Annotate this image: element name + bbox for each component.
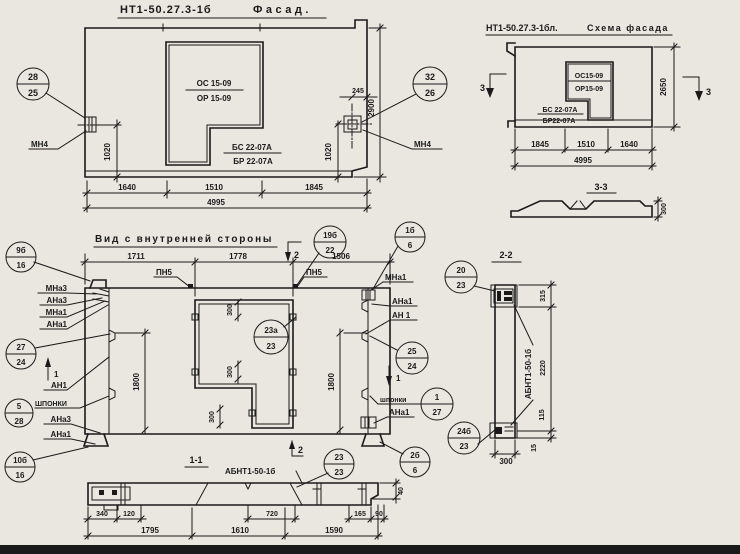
- dim-40: 40: [398, 487, 405, 495]
- inner-window-opening: [195, 300, 293, 428]
- svg-text:16: 16: [16, 471, 25, 480]
- label-shponki-right: шпонки: [380, 397, 406, 404]
- label-an1: АН1: [51, 381, 68, 390]
- label-ana1: АНа1: [47, 320, 68, 329]
- label-ana3-bottom: АНа3: [51, 415, 72, 424]
- callout-27-24: 27 24: [6, 334, 110, 369]
- svg-text:24б: 24б: [457, 427, 471, 436]
- svg-text:5: 5: [17, 402, 22, 411]
- dim-1640-s: 1640: [620, 140, 638, 149]
- label-mna1-right: МНа1: [385, 273, 407, 282]
- svg-text:20: 20: [457, 266, 466, 275]
- label-ana1-right-bottom: АНа1: [389, 408, 410, 417]
- svg-text:32: 32: [425, 72, 435, 82]
- section-1-1-title: 1-1: [189, 455, 202, 465]
- scheme-window-mark-bottom: ОР15-09: [575, 86, 603, 93]
- scheme-drawing: НТ1-50.27.3-1бл. Схема фасада ОС15-09 ОР…: [480, 23, 711, 221]
- shponka-keys-right: [362, 300, 368, 400]
- facade-window-mark-bottom: ОР 15-09: [197, 94, 232, 103]
- callout-20-23: 20 23: [445, 261, 495, 293]
- label-mna1: МНа1: [46, 308, 68, 317]
- svg-text:23: 23: [457, 281, 466, 290]
- dim-2650: 2650: [659, 78, 668, 96]
- callout-5-28: 5 28: [5, 399, 33, 427]
- dim-1800-right: 1800: [327, 373, 336, 391]
- scheme-base-mark-top: БС 22-07А: [543, 107, 578, 114]
- inner-view-title: Вид с внутренней стороны: [95, 234, 273, 245]
- dim-4995: 4995: [207, 198, 225, 207]
- section-mark-1-right: 1: [396, 374, 401, 383]
- section-3-3: 3-3 300: [511, 182, 668, 221]
- label-an1-right: АН 1: [392, 311, 411, 320]
- dim-300-b: 300: [227, 366, 234, 378]
- section-mark-3-left: 3: [480, 74, 506, 98]
- section-2-2-label: АБНТ1-50-1б: [524, 349, 533, 399]
- svg-text:23: 23: [335, 453, 344, 462]
- inner-view-drawing: Вид с внутренней стороны 1711 1778 1506 …: [5, 222, 496, 487]
- callout-10b-16: 10б 16: [5, 447, 88, 482]
- drawing-sheet: НТ1-50.27.3-1б Фасад. ОС 15-09 ОР 15-09 …: [0, 0, 740, 554]
- section-3-3-title: 3-3: [594, 182, 607, 192]
- svg-text:23: 23: [335, 468, 344, 477]
- embed-label-mn4-left: МН4: [31, 140, 48, 149]
- svg-text:3: 3: [480, 83, 485, 93]
- facade-dimensions: 1020 245 1020 2900 1640 1510 1845 4995: [83, 24, 386, 212]
- facade-base-mark-bottom: БР 22-07А: [233, 157, 273, 166]
- facade-title-code: НТ1-50.27.3-1б: [120, 4, 212, 16]
- embed-label-mn4-right: МН4: [414, 140, 431, 149]
- dim-1640: 1640: [118, 183, 136, 192]
- svg-text:23: 23: [267, 342, 276, 351]
- section-mark-2-bottom: 2: [289, 440, 303, 456]
- svg-text:24: 24: [17, 358, 26, 367]
- section-mark-1-left: 1: [54, 370, 59, 379]
- section-2-2-drawing: 2-2 АБНТ1-50-1б 315 2220 115 15 300: [490, 250, 556, 466]
- inner-top-dimensions: 1711 1778 1506: [81, 252, 394, 296]
- label-ana1-right: АНа1: [392, 297, 413, 306]
- svg-text:1б: 1б: [405, 226, 414, 235]
- svg-text:2: 2: [298, 445, 303, 455]
- callout-25-24: 25 24: [370, 336, 428, 374]
- label-ana3: АНа3: [47, 296, 68, 305]
- dim-1778: 1778: [229, 252, 247, 261]
- dim-2900: 2900: [367, 99, 376, 117]
- scheme-title-word: Схема фасада: [587, 23, 669, 33]
- dim-245: 245: [352, 88, 364, 95]
- svg-text:19б: 19б: [323, 231, 337, 240]
- section-1-1-drawing: 1-1 АБНТ1-50-1б 40 340 120 720 165 90 17…: [84, 455, 405, 539]
- svg-text:1: 1: [435, 393, 440, 402]
- inner-window-dimensions: 300 300 300 1800 1800: [116, 299, 366, 434]
- dim-1845: 1845: [305, 183, 323, 192]
- svg-text:2: 2: [294, 250, 299, 260]
- dim-1711: 1711: [127, 252, 145, 261]
- callout-9b-16: 9б 16: [6, 242, 90, 281]
- dim-165: 165: [354, 511, 366, 518]
- label-pn5-left: ПН5: [156, 268, 173, 277]
- scan-edge-band: [0, 545, 740, 554]
- callout-23a-23: 23а 23: [254, 317, 296, 354]
- dim-90: 90: [375, 511, 383, 518]
- callout-28-25: 28 25: [17, 68, 85, 118]
- callout-23-23: 23 23: [297, 449, 354, 487]
- svg-text:16: 16: [17, 261, 26, 270]
- section-2-2-title: 2-2: [499, 250, 512, 260]
- svg-text:27: 27: [433, 408, 442, 417]
- dim-4995-s: 4995: [574, 156, 592, 165]
- dim-300-a: 300: [227, 304, 234, 316]
- dim-315: 315: [540, 290, 547, 302]
- facade-base-mark-top: БС 22-07А: [232, 143, 272, 152]
- dim-1020-left: 1020: [103, 143, 112, 161]
- embed-detail-1-1: [92, 487, 130, 500]
- dim-2220: 2220: [540, 360, 547, 376]
- dim-720: 720: [266, 511, 278, 518]
- callout-24b-23: 24б 23: [448, 422, 496, 454]
- dim-340: 340: [96, 511, 108, 518]
- section-1-1-dimensions: 40 340 120 720 165 90 1795 1610 1590: [84, 479, 405, 539]
- label-mna3: МНа3: [46, 284, 68, 293]
- dim-115: 115: [539, 409, 546, 420]
- dim-300-section3: 300: [661, 203, 668, 215]
- dim-1020-right: 1020: [324, 143, 333, 161]
- dim-1510: 1510: [205, 183, 223, 192]
- svg-text:22: 22: [326, 246, 335, 255]
- dim-1845-s: 1845: [531, 140, 549, 149]
- label-ana1-bottom: АНа1: [51, 430, 72, 439]
- panel-drawing-svg: НТ1-50.27.3-1б Фасад. ОС 15-09 ОР 15-09 …: [0, 0, 740, 554]
- scheme-title-code: НТ1-50.27.3-1бл.: [486, 23, 558, 33]
- callout-1-27: 1 27: [421, 388, 453, 420]
- svg-text:6: 6: [413, 466, 418, 475]
- dim-120: 120: [123, 511, 135, 518]
- dim-300-bottom: 300: [499, 457, 513, 466]
- svg-text:23а: 23а: [264, 326, 278, 335]
- shponka-keys-left: [109, 330, 115, 400]
- svg-text:6: 6: [408, 241, 413, 250]
- svg-text:24: 24: [408, 362, 417, 371]
- svg-text:28: 28: [28, 72, 38, 82]
- scheme-window-mark-top: ОС15-09: [575, 73, 604, 80]
- dim-1590: 1590: [325, 526, 343, 535]
- label-pn5-right: ПН5: [306, 268, 323, 277]
- svg-text:23: 23: [460, 442, 469, 451]
- dim-15: 15: [531, 444, 538, 452]
- inner-left-labels: МНа3 АНа3 МНа1 АНа1 1 АН1 ШПОНКИ АНа3 АН…: [35, 284, 109, 444]
- section-mark-3-right: 3: [683, 77, 711, 101]
- svg-text:9б: 9б: [16, 246, 25, 255]
- section-1-1-label: АБНТ1-50-1б: [225, 467, 275, 476]
- dim-1510-s: 1510: [577, 140, 595, 149]
- facade-drawing: НТ1-50.27.3-1б Фасад. ОС 15-09 ОР 15-09 …: [17, 4, 447, 212]
- svg-text:27: 27: [17, 343, 26, 352]
- svg-text:25: 25: [408, 347, 417, 356]
- svg-text:26: 26: [425, 88, 435, 98]
- dim-1795: 1795: [141, 526, 159, 535]
- callout-2b-6: 2б 6: [380, 442, 430, 477]
- svg-text:2б: 2б: [410, 451, 419, 460]
- svg-text:10б: 10б: [13, 456, 27, 465]
- facade-title-word: Фасад.: [253, 4, 312, 16]
- scheme-base-mark-bottom: БР22-07А: [543, 118, 576, 125]
- dim-1610: 1610: [231, 526, 249, 535]
- svg-text:25: 25: [28, 88, 38, 98]
- dim-1800-left: 1800: [132, 373, 141, 391]
- facade-window-mark-top: ОС 15-09: [197, 79, 232, 88]
- dim-300-c: 300: [209, 411, 216, 423]
- svg-text:3: 3: [706, 87, 711, 97]
- label-shponki-left: ШПОНКИ: [35, 401, 67, 408]
- svg-text:28: 28: [15, 417, 24, 426]
